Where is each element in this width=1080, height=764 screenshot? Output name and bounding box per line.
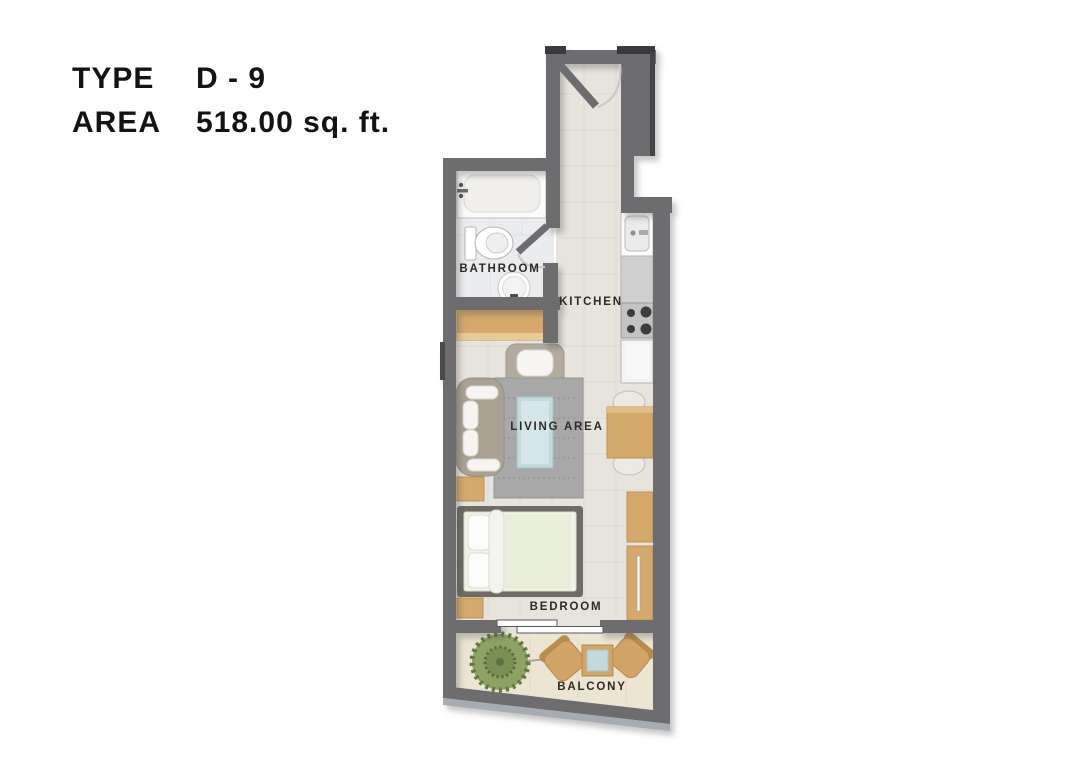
balcony-table <box>582 645 613 676</box>
bathroom-right-wall-upper <box>546 171 560 228</box>
kitchen-counter <box>621 256 653 303</box>
wall-cap-right <box>617 46 655 54</box>
floorplan-svg: BATHROOM KITCHEN LIVING AREA BEDROOM BAL… <box>0 0 1080 764</box>
bathtub <box>457 169 546 218</box>
living-cabinet <box>457 309 547 340</box>
bedroom-cabinet <box>627 492 653 542</box>
side-table <box>457 477 484 501</box>
left-wall <box>443 158 456 690</box>
bed <box>457 506 583 597</box>
bathroom-bottom-wall <box>443 297 560 310</box>
wall-cap-left <box>545 46 566 54</box>
balcony-label: BALCONY <box>557 681 626 693</box>
nightstand <box>457 598 483 618</box>
wardrobe-handle <box>637 556 640 611</box>
toilet <box>465 227 513 260</box>
bed-bolster <box>489 510 504 593</box>
pillow <box>468 515 490 550</box>
sliding-door-panel <box>497 620 557 627</box>
left-wall-window <box>440 342 445 380</box>
burner <box>641 307 652 318</box>
floorplan-page: TYPE D - 9 AREA 518.00 sq. ft. <box>0 0 1080 764</box>
bed-cover <box>505 514 571 589</box>
kitchen-sink <box>621 211 653 256</box>
pillow <box>468 553 490 588</box>
upper-right-wall <box>621 50 655 156</box>
bathtub-faucet <box>457 189 468 193</box>
notch-wall <box>621 150 634 202</box>
bathroom-top-wall <box>443 158 560 171</box>
corridor-floor <box>553 52 625 220</box>
wardrobe <box>627 546 653 620</box>
balcony-wall-right <box>600 620 670 633</box>
bedroom-label: BEDROOM <box>530 601 603 613</box>
wall-edge-dark <box>650 52 655 156</box>
bathroom-label: BATHROOM <box>459 263 540 275</box>
sofa <box>456 378 504 476</box>
balcony-wall-left <box>443 620 501 633</box>
stove <box>621 303 653 338</box>
burner <box>627 309 635 317</box>
burner <box>627 325 635 333</box>
sliding-door-panel <box>517 627 603 634</box>
kitchen-label: KITCHEN <box>559 296 623 308</box>
right-wall <box>653 197 670 716</box>
living-area-label: LIVING AREA <box>510 421 604 433</box>
dining-table <box>607 407 653 458</box>
burner <box>641 324 652 335</box>
kitchen-lower-cabinet <box>621 340 653 383</box>
